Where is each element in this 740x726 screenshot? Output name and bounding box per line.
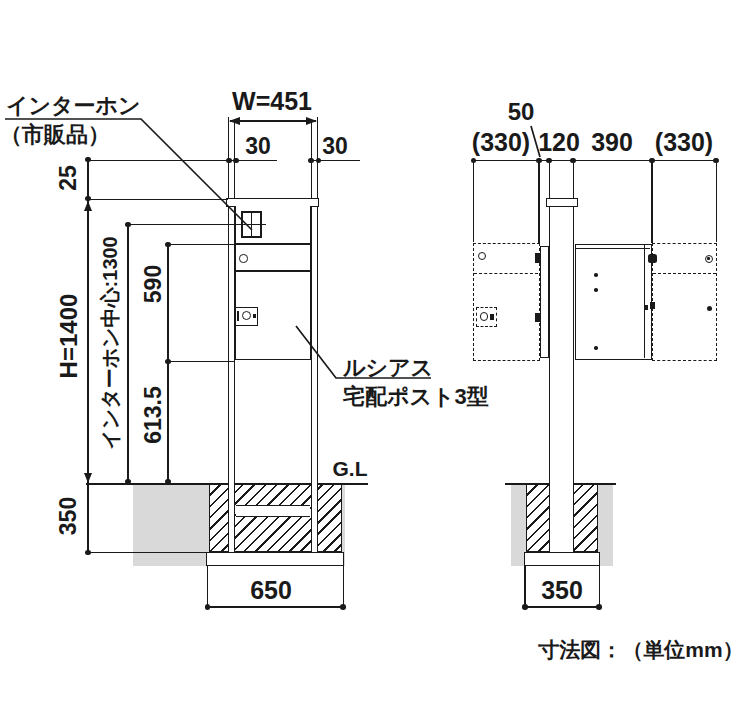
screw-dot-icon [594, 273, 598, 277]
dim-footing-width-label: 650 [250, 578, 292, 603]
front-right-post [311, 206, 319, 552]
dim-ext-350s [524, 566, 525, 607]
dim-width-label: W=451 [232, 89, 312, 114]
dim-vline-1300 [127, 224, 129, 483]
dim-lower-height-label: 613.5 [142, 386, 165, 444]
dim-line-350s [525, 606, 599, 608]
lock-key-slot [490, 314, 495, 321]
front-box-divider [235, 243, 311, 245]
dim-line-30-right [310, 160, 360, 162]
front-left-post-edge [228, 117, 230, 198]
side-footing-width-label: 350 [541, 578, 583, 603]
side-dim-ext [651, 161, 652, 243]
dim-top-offset-label: 25 [57, 165, 80, 191]
target-dot [707, 257, 709, 259]
front-door-lock [235, 307, 258, 326]
front-knob-circle [239, 254, 247, 262]
dim-rear-clearance-label: (330) [655, 130, 713, 155]
dim-line-650 [207, 606, 343, 608]
side-open-door-panel [540, 246, 550, 358]
side-footing-base [524, 552, 600, 566]
front-box-divider [235, 270, 311, 272]
side-box [575, 244, 653, 360]
latch-mark [645, 305, 648, 310]
door-hinge-tab [535, 253, 540, 264]
side-dim-line-top [473, 160, 717, 162]
side-dim-ext [473, 161, 474, 242]
dim-line-w451 [230, 120, 316, 122]
dim-front-clearance-label: (330) [472, 130, 530, 155]
dimension-drawing: W=451 30 30 25 H=1400 インターホン中心:1300 590 … [0, 0, 740, 726]
arrow-up-icon [84, 201, 92, 211]
side-box-lid-line [576, 248, 650, 249]
dim-ext-350s [599, 566, 600, 607]
dim-door-thickness-label: 50 [508, 100, 535, 124]
dim-ext-350-bottom [86, 552, 210, 554]
front-footing-band [236, 505, 310, 517]
door-hinge-tab [535, 313, 540, 322]
ground-level-label: G.L [333, 458, 368, 479]
side-dim-ext [549, 161, 550, 198]
dim-door-height-label: 590 [142, 265, 165, 303]
product-annotation-line1: ルシアス [343, 355, 433, 381]
dim-box-depth-label: 390 [591, 130, 633, 155]
dim-post-right-label: 30 [322, 135, 348, 158]
lock-bracket [237, 311, 239, 322]
side-box-door-edge [644, 245, 645, 358]
front-right-post-edge [317, 117, 319, 198]
dim-embed-depth-label: 350 [57, 497, 80, 535]
intercom-annotation-line1: インターホン [6, 93, 141, 119]
dim-vline-main [87, 159, 89, 552]
swing-door-lock [476, 307, 498, 327]
side-cap [546, 198, 578, 207]
dim-line-30-left [86, 160, 277, 162]
intercom-side-tab [261, 224, 266, 226]
arrow-right-icon [306, 117, 317, 125]
swing-knob-circle [478, 252, 486, 260]
lock-key-slot [253, 314, 256, 319]
hinge-knuckle [648, 254, 657, 264]
swing-screw-dot [707, 306, 712, 311]
dim-ext-590-bottom [167, 361, 234, 363]
product-annotation-line2: 宅配ポスト3型 [343, 384, 489, 410]
side-dim-ext [538, 161, 539, 244]
dim-ext-650 [207, 566, 208, 607]
screw-dot-icon [594, 346, 598, 350]
arrow-down-icon [84, 473, 92, 483]
front-door-swing-divider [474, 273, 538, 274]
dim-ext-590-top [167, 244, 234, 246]
side-dim-ext [573, 161, 574, 198]
dim-height-label: H=1400 [57, 294, 81, 379]
intercom-annotation-line2: （市販品） [0, 122, 110, 148]
arrow-left-icon [229, 117, 240, 125]
dim-ext-cap-top [86, 199, 228, 201]
dim-ext-1300 [127, 224, 246, 226]
rear-door-swing-divider [653, 273, 716, 274]
front-door-swing-outline [473, 243, 540, 361]
side-dim-ext [716, 161, 717, 242]
dim-ext-650 [343, 566, 344, 607]
lock-dial [480, 312, 489, 321]
lock-dial [242, 311, 251, 320]
dim-post-left-label: 30 [245, 135, 271, 158]
front-footing-base [206, 552, 344, 566]
side-post [549, 207, 574, 552]
dim-vline-590 [167, 244, 169, 483]
drawing-caption: 寸法図：（単位mm） [538, 639, 740, 660]
screw-dot-icon [594, 288, 598, 292]
dim-post-depth-label: 120 [538, 130, 580, 155]
hinge-tab [650, 302, 655, 309]
dim-intercom-center-label: インターホン中心:1300 [100, 236, 120, 450]
